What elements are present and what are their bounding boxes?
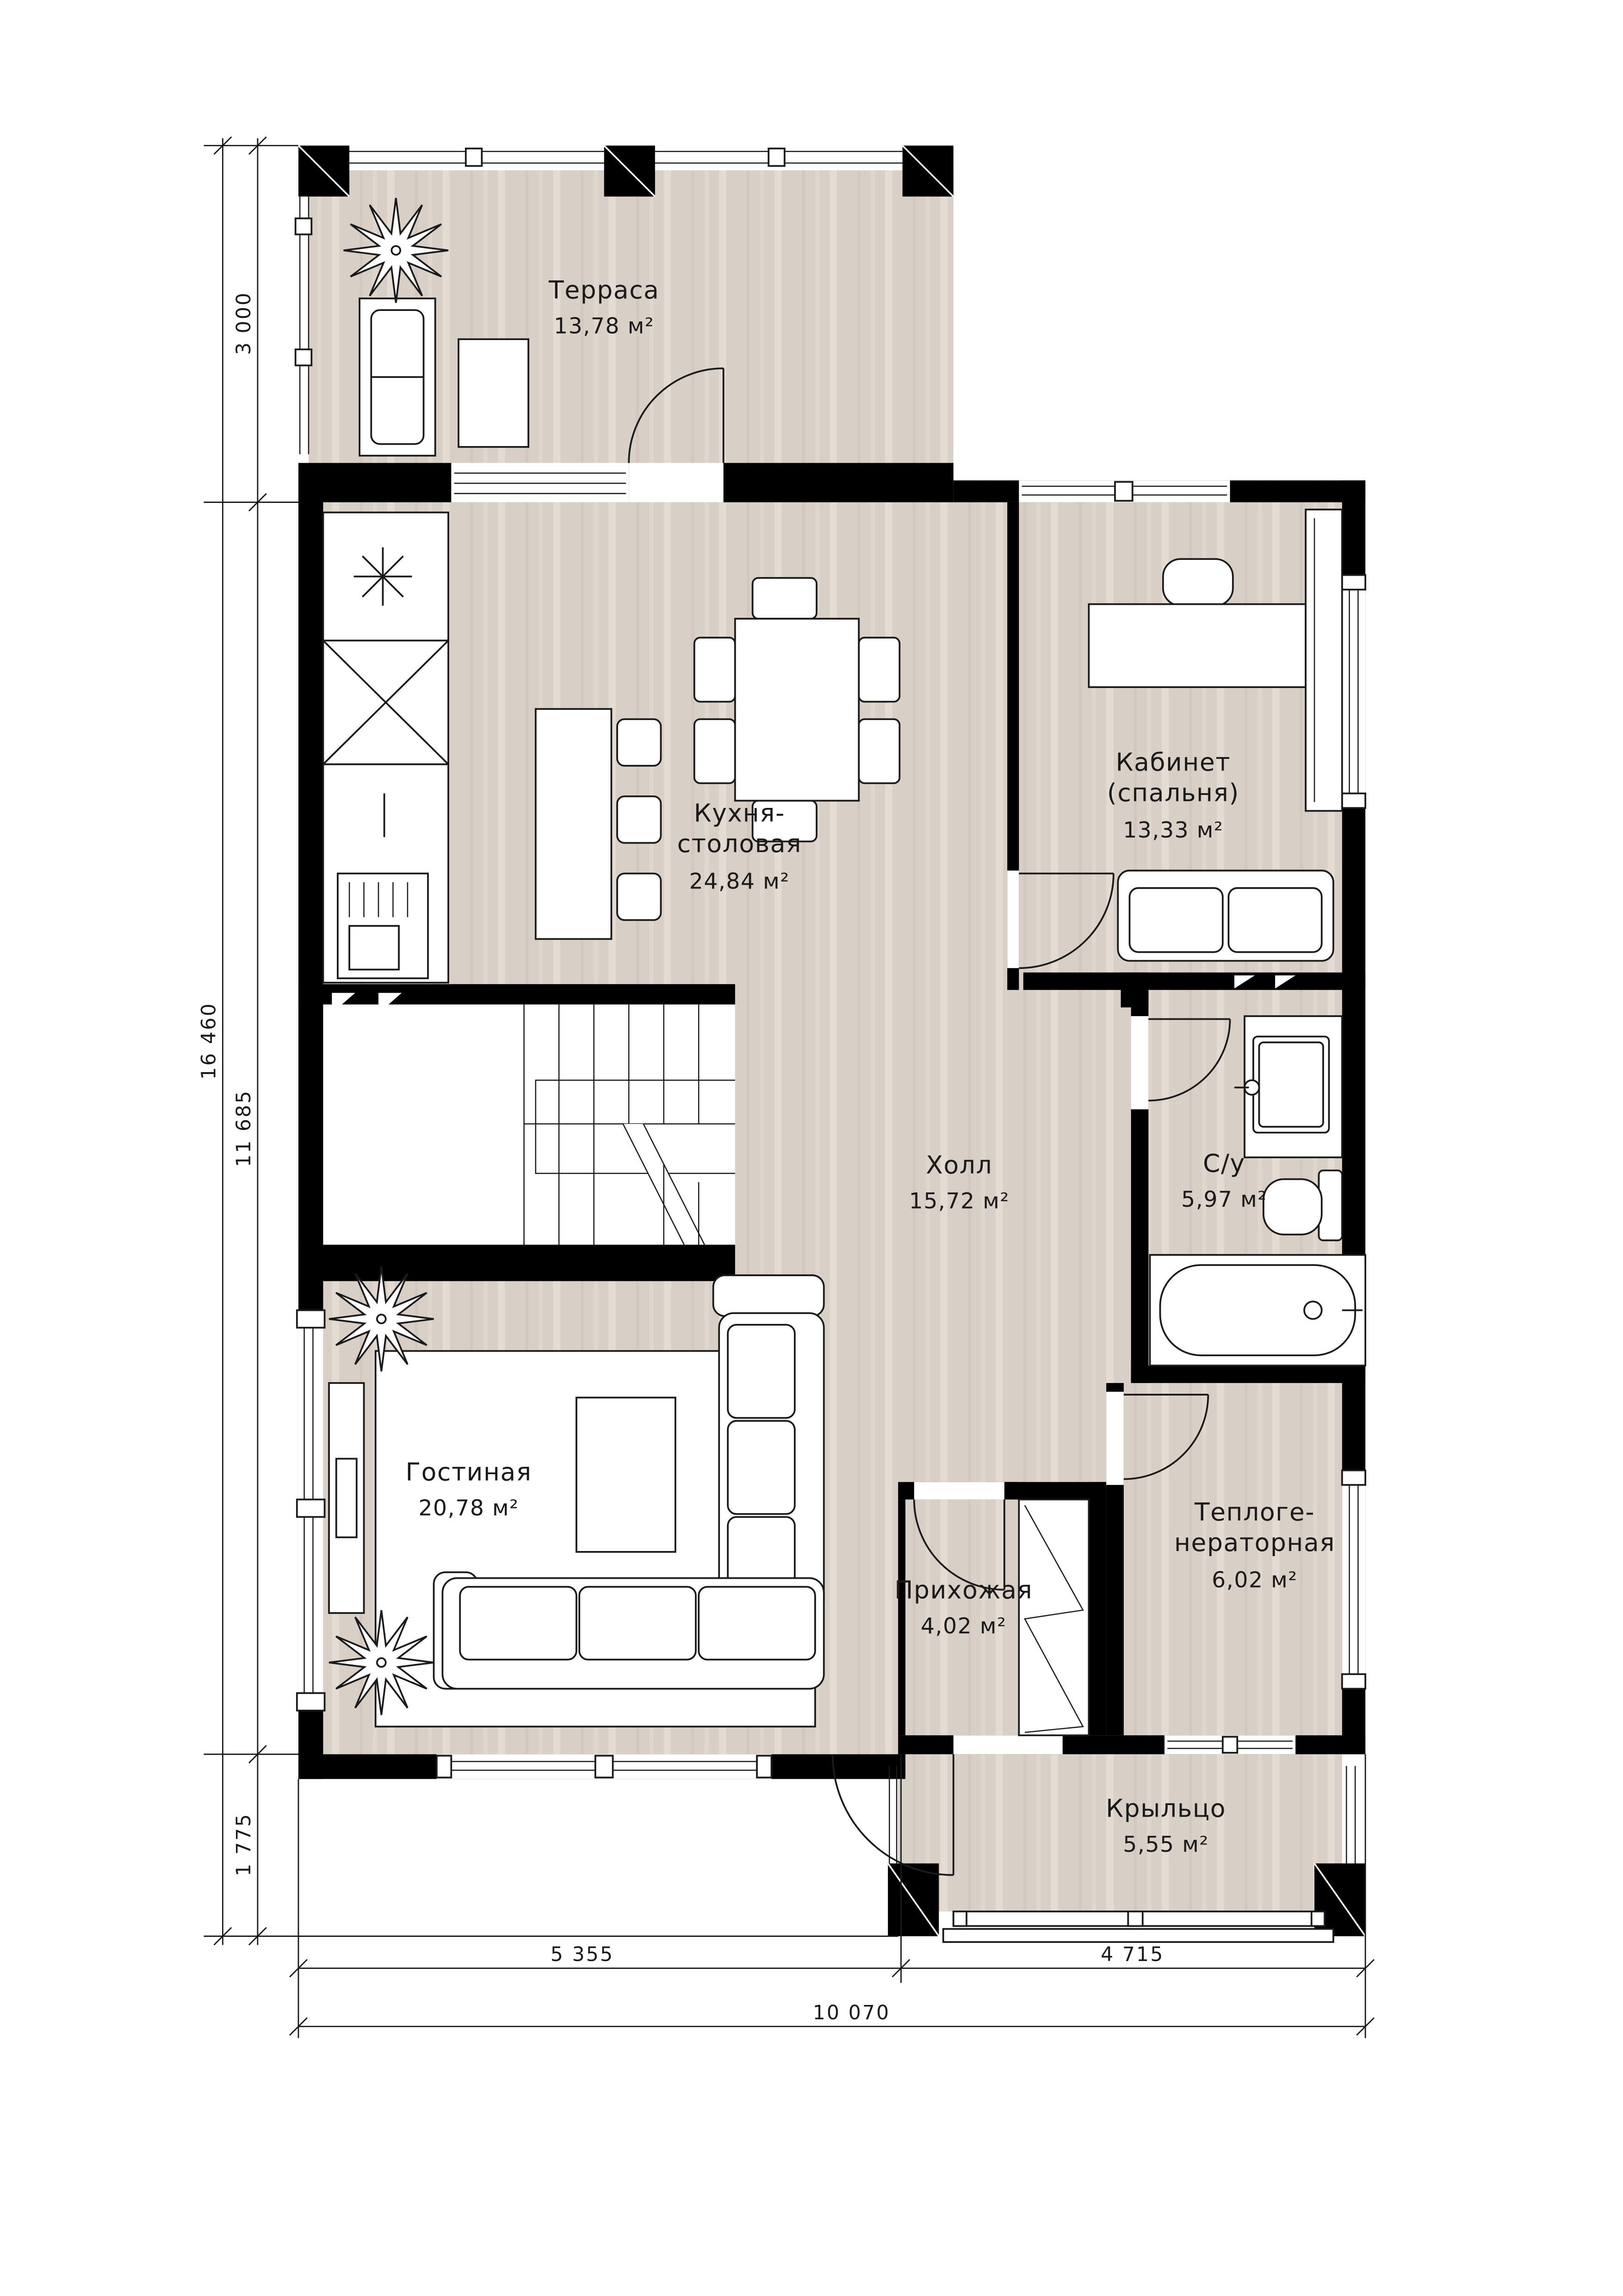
room-label-entry: Прихожая 4,02 м² — [894, 1576, 1033, 1640]
room-name: С/у — [1181, 1150, 1267, 1181]
floor-plan: Терраса 13,78 м² Кухня- столовая 24,84 м… — [0, 0, 1623, 2296]
dim-left-middle: 11 685 — [233, 1090, 256, 1167]
room-label-living: Гостиная 20,78 м² — [405, 1458, 532, 1522]
room-label-kitchen: Кухня- столовая 24,84 м² — [677, 800, 802, 894]
room-area: 13,33 м² — [1107, 817, 1239, 844]
dim-left-bottom: 1 775 — [233, 1813, 256, 1876]
room-name: Холл — [909, 1152, 1010, 1183]
dim-bottom-total: 10 070 — [813, 2002, 891, 2025]
staircase — [323, 1005, 735, 1245]
room-label-study: Кабинет (спальня) 13,33 м² — [1107, 749, 1239, 844]
room-area: 13,78 м² — [549, 313, 659, 341]
room-label-hall: Холл 15,72 м² — [909, 1152, 1010, 1216]
room-area: 24,84 м² — [677, 868, 802, 895]
room-name-line1: Кухня- — [677, 800, 802, 831]
room-label-boiler: Теплоге- нераторная 6,02 м² — [1174, 1499, 1335, 1594]
room-area: 5,97 м² — [1181, 1187, 1267, 1214]
room-label-bathroom: С/у 5,97 м² — [1181, 1150, 1267, 1214]
dim-left-total: 16 460 — [198, 1002, 221, 1080]
room-area: 4,02 м² — [894, 1613, 1033, 1641]
room-name-line2: нераторная — [1174, 1529, 1335, 1560]
dim-bottom-left: 5 355 — [551, 1943, 614, 1967]
room-name: Прихожая — [894, 1576, 1033, 1607]
dim-bottom-right: 4 715 — [1101, 1943, 1164, 1967]
room-area: 20,78 м² — [405, 1496, 532, 1523]
room-label-terrace: Терраса 13,78 м² — [549, 277, 659, 341]
room-area: 5,55 м² — [1106, 1832, 1226, 1859]
room-label-porch: Крыльцо 5,55 м² — [1106, 1795, 1226, 1859]
room-name: Гостиная — [405, 1458, 532, 1489]
room-name: Крыльцо — [1106, 1795, 1226, 1826]
room-name-line1: Теплоге- — [1174, 1499, 1335, 1530]
room-name: Терраса — [549, 277, 659, 308]
dim-left-top: 3 000 — [233, 292, 256, 355]
room-name-line2: столовая — [677, 831, 802, 862]
room-area: 6,02 м² — [1174, 1566, 1335, 1594]
room-area: 15,72 м² — [909, 1188, 1010, 1216]
room-name-line1: Кабинет — [1107, 749, 1239, 780]
room-name-line2: (спальня) — [1107, 780, 1239, 811]
